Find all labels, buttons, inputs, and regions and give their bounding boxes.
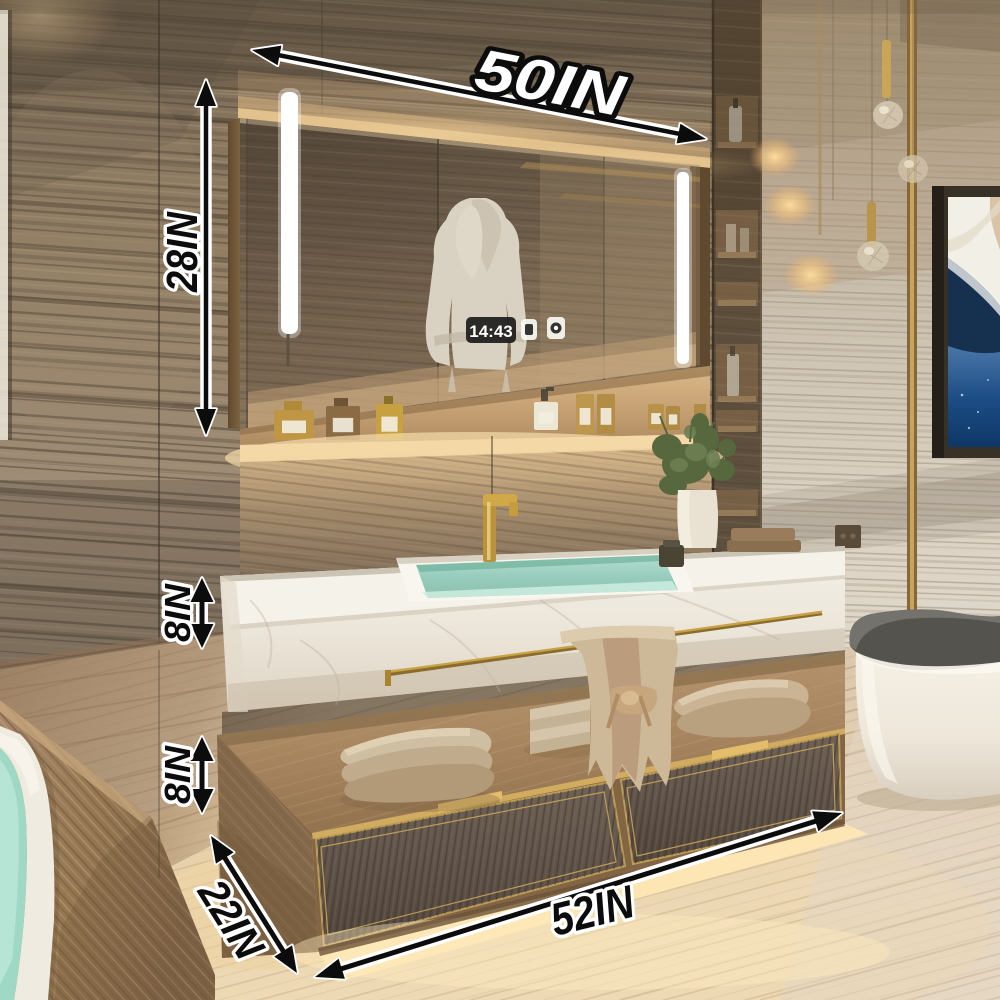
svg-text:28IN: 28IN	[158, 211, 207, 293]
svg-text:8IN: 8IN	[157, 583, 198, 642]
svg-text:14:43: 14:43	[469, 322, 512, 341]
svg-text:8IN: 8IN	[157, 745, 198, 804]
